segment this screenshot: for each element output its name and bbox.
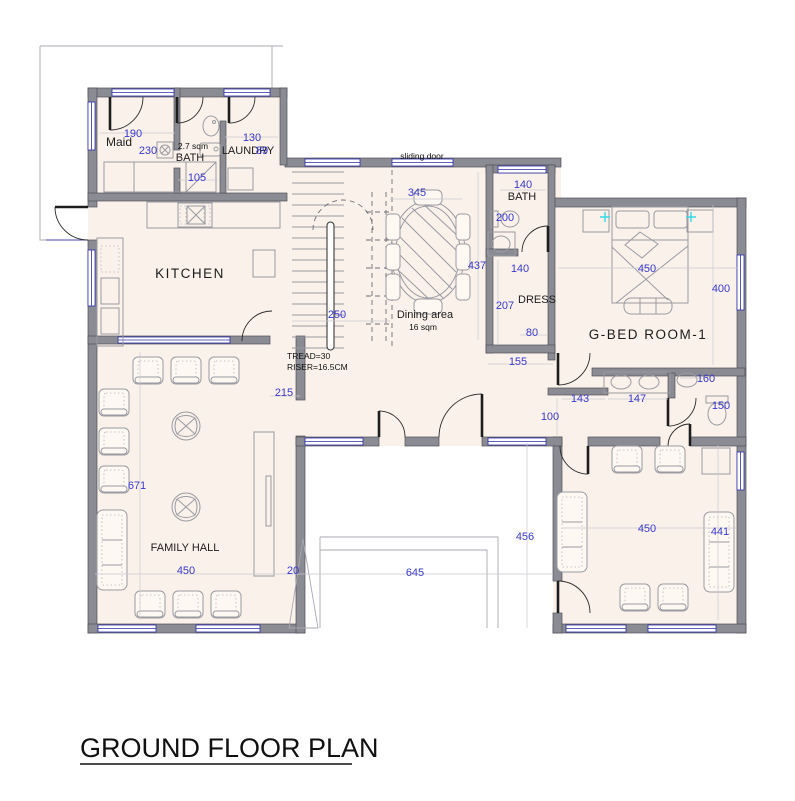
dim-dress-w2: 80 [526,327,538,339]
kitchen-label: KITCHEN [155,266,225,281]
window [305,159,360,166]
window [648,625,716,632]
armchair [135,591,165,618]
armchair [655,446,685,473]
window [98,625,156,632]
dim-laundry-n: 89 [256,145,268,157]
floor-plan-canvas: Maid 190 230 2.7 sqm BATH 105 130 LAUNDR… [0,0,795,801]
window [88,102,95,150]
armchair [173,591,203,618]
window [305,438,363,445]
dim-wc-e: 150 [712,400,730,412]
dim-fh-gap: 20 [287,565,299,577]
dim-dining-width: 345 [408,187,426,199]
dim-sitting-height: 441 [711,526,729,538]
armchair [658,584,688,611]
dim-porch-width: 645 [406,567,424,579]
family-hall-label: FAMILY HALL [151,542,220,554]
dim-maid-width: 190 [124,128,142,140]
armchair [99,389,129,416]
dim-bed-width: 450 [638,263,656,275]
dress-label: DRESS [518,294,556,306]
armchair [99,428,129,455]
dim-dress-height: 207 [496,300,514,312]
armchair [209,357,239,384]
kitchen-side-door [55,207,88,240]
armchair [133,357,163,384]
window [88,250,95,306]
dim-porch-height: 456 [516,531,534,543]
dim-dress-w3: 155 [509,356,527,368]
dim-laundry-width: 130 [243,132,261,144]
dim-bath-tl-width: 105 [188,172,206,184]
sliding-door-note: sliding door [400,151,444,161]
armchair [171,357,201,384]
sofa [557,492,587,572]
armchair [612,446,642,473]
dim-sitting-width: 450 [638,523,656,535]
dim-dining-height: 437 [468,260,486,272]
title-text: GROUND FLOOR PLAN [80,733,379,763]
dim-maid-depth: 230 [139,145,157,157]
dim-fh-width: 450 [177,565,195,577]
dim-stair-width: 250 [328,309,346,321]
window [224,89,270,96]
window [112,89,174,96]
bedroom-label: G-BED ROOM-1 [589,327,708,342]
stair-riser-note: RISER=16.5CM [287,362,348,372]
window [498,166,546,173]
sofa [704,512,734,592]
window [737,452,744,490]
sofa [97,510,127,590]
floor-plan-drawing: Maid 190 230 2.7 sqm BATH 105 130 LAUNDR… [0,0,795,801]
stair-tread-note: TREAD=30 [287,351,330,361]
armchair [99,466,129,493]
dim-hall-top: 215 [275,387,293,399]
dim-wc-a: 143 [571,393,589,405]
dim-dress-top: 140 [511,263,529,275]
window [118,337,230,343]
bath-tl-area-label: 2.7 sqm [178,141,208,151]
armchair [620,584,650,611]
dining-area-label: 16 sqm [409,322,437,332]
entry-porch [289,537,498,628]
dim-wc-b: 147 [628,393,646,405]
armchair [211,591,241,618]
dim-bath-tr-width: 140 [514,179,532,191]
window [488,438,546,445]
dim-wc-d: 160 [697,373,715,385]
dim-bed-height: 400 [712,283,730,295]
window [737,255,744,310]
bath-tl-label: BATH [176,152,205,164]
dining-label: Dining area [397,309,454,321]
dim-bath-tr-height: 200 [496,212,514,224]
window [566,625,626,632]
window [196,625,260,632]
plan-title: GROUND FLOOR PLAN [80,733,379,764]
bath-tr-label: BATH [508,191,537,203]
dim-wc-c: 100 [541,411,559,423]
dim-fh-height: 671 [128,480,146,492]
stair-rail [327,222,334,350]
